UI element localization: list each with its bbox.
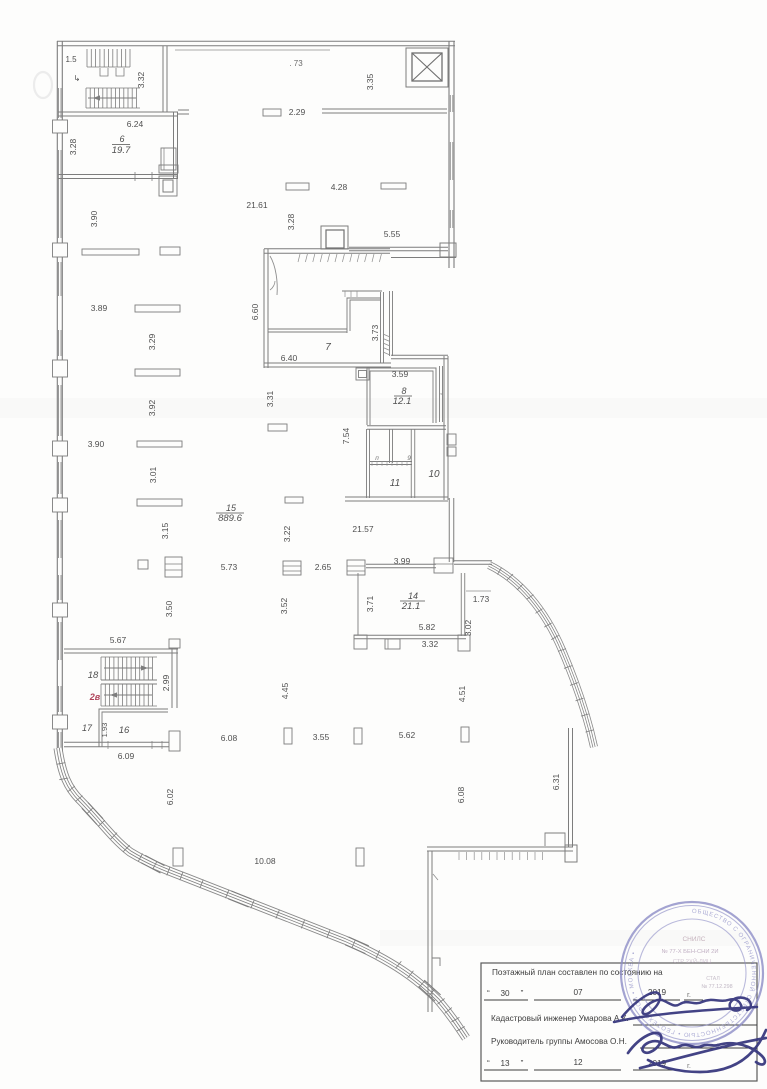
svg-text:№ 77-Х БЕН-СНИ 2И: № 77-Х БЕН-СНИ 2И bbox=[661, 949, 718, 955]
svg-text:СТР 2ХЙ-ЛИЦ: СТР 2ХЙ-ЛИЦ bbox=[673, 957, 712, 965]
svg-text:Поэтажный план составлен по со: Поэтажный план составлен по состоянию на bbox=[492, 968, 663, 977]
svg-text:п: п bbox=[375, 455, 379, 462]
svg-text:5.67: 5.67 bbox=[110, 635, 127, 645]
svg-text:3.32: 3.32 bbox=[136, 71, 146, 88]
svg-text:3.32: 3.32 bbox=[422, 639, 439, 649]
svg-text:3.28: 3.28 bbox=[286, 213, 296, 230]
svg-text:5.73: 5.73 bbox=[221, 562, 238, 572]
svg-text:18: 18 bbox=[88, 670, 99, 681]
svg-text:21.57: 21.57 bbox=[352, 524, 374, 534]
svg-text:12.1: 12.1 bbox=[393, 396, 412, 407]
svg-text:5.82: 5.82 bbox=[419, 622, 436, 632]
svg-text:3.99: 3.99 bbox=[394, 556, 411, 566]
svg-text:16: 16 bbox=[119, 725, 130, 736]
svg-text:3.92: 3.92 bbox=[147, 399, 157, 416]
svg-text:3.01: 3.01 bbox=[148, 466, 158, 483]
svg-text:21.61: 21.61 bbox=[246, 200, 268, 210]
svg-text:6.60: 6.60 bbox=[250, 303, 260, 320]
svg-text:3.90: 3.90 bbox=[88, 439, 105, 449]
svg-text:4.45: 4.45 bbox=[280, 682, 290, 699]
svg-text:↳: ↳ bbox=[74, 74, 81, 83]
svg-text:2.65: 2.65 bbox=[315, 562, 332, 572]
svg-text:6.24: 6.24 bbox=[127, 119, 144, 129]
svg-text:1.93: 1.93 bbox=[100, 723, 109, 738]
svg-text:4.28: 4.28 bbox=[331, 182, 348, 192]
svg-text:1.5: 1.5 bbox=[65, 55, 77, 64]
svg-text:4.51: 4.51 bbox=[457, 685, 467, 702]
svg-text:9: 9 bbox=[407, 455, 411, 462]
svg-text:2.99: 2.99 bbox=[161, 674, 171, 691]
svg-text:6.09: 6.09 bbox=[118, 751, 135, 761]
svg-text:7: 7 bbox=[325, 342, 331, 353]
svg-text:2.29: 2.29 bbox=[289, 107, 306, 117]
svg-text:30: 30 bbox=[500, 989, 510, 998]
svg-text:3.90: 3.90 bbox=[89, 210, 99, 227]
svg-text:2в: 2в bbox=[89, 692, 101, 702]
svg-text:10: 10 bbox=[428, 469, 440, 480]
svg-text:3.31: 3.31 bbox=[265, 390, 275, 407]
svg-text:5.62: 5.62 bbox=[399, 730, 416, 740]
svg-text:3.29: 3.29 bbox=[147, 333, 157, 350]
svg-text:3.28: 3.28 bbox=[68, 138, 78, 155]
svg-text:3.73: 3.73 bbox=[370, 324, 380, 341]
svg-text:3.59: 3.59 bbox=[392, 369, 409, 379]
svg-text:3.15: 3.15 bbox=[160, 522, 170, 539]
svg-text:5.55: 5.55 bbox=[384, 229, 401, 239]
svg-text:6.08: 6.08 bbox=[456, 786, 466, 803]
svg-text:07: 07 bbox=[573, 988, 583, 997]
svg-text:6.40: 6.40 bbox=[281, 353, 298, 363]
svg-text:№ 77.12.298: № 77.12.298 bbox=[701, 984, 732, 990]
svg-text:3.50: 3.50 bbox=[164, 600, 174, 617]
svg-text:6.08: 6.08 bbox=[221, 733, 238, 743]
svg-text:7.54: 7.54 bbox=[341, 427, 351, 444]
svg-text:14: 14 bbox=[408, 591, 418, 601]
svg-text:“: “ bbox=[487, 1059, 490, 1068]
svg-text:12: 12 bbox=[573, 1058, 583, 1067]
svg-text:13: 13 bbox=[500, 1059, 510, 1068]
svg-text:3.22: 3.22 bbox=[282, 525, 292, 542]
svg-text:3.52: 3.52 bbox=[279, 597, 289, 614]
svg-text:6: 6 bbox=[119, 134, 124, 144]
svg-text:6.31: 6.31 bbox=[551, 773, 561, 790]
svg-text:. 73: . 73 bbox=[289, 59, 303, 68]
svg-text:Руководитель группы Амосова О.: Руководитель группы Амосова О.Н. bbox=[491, 1037, 627, 1046]
svg-text:17: 17 bbox=[82, 723, 93, 733]
svg-text:10.08: 10.08 bbox=[254, 856, 276, 866]
svg-text:“: “ bbox=[487, 989, 490, 998]
svg-text:21.1: 21.1 bbox=[401, 601, 421, 612]
svg-text:г.: г. bbox=[687, 1061, 691, 1070]
svg-text:1.73: 1.73 bbox=[473, 594, 490, 604]
svg-text:СТАЛ: СТАЛ bbox=[706, 976, 720, 982]
svg-text:СНИЛС: СНИЛС bbox=[682, 936, 705, 943]
svg-text:”: ” bbox=[521, 1059, 524, 1068]
svg-text:3.35: 3.35 bbox=[365, 73, 375, 90]
svg-text:889.6: 889.6 bbox=[218, 513, 242, 524]
svg-text:15: 15 bbox=[226, 503, 237, 513]
svg-text:3.89: 3.89 bbox=[91, 303, 108, 313]
svg-text:”: ” bbox=[521, 989, 524, 998]
svg-text:3.55: 3.55 bbox=[313, 732, 330, 742]
svg-text:3.02: 3.02 bbox=[463, 619, 473, 636]
svg-text:г.: г. bbox=[687, 990, 691, 999]
svg-text:3.71: 3.71 bbox=[365, 595, 375, 612]
svg-text:19.7: 19.7 bbox=[112, 145, 131, 156]
svg-text:8: 8 bbox=[401, 386, 406, 396]
svg-text:6.02: 6.02 bbox=[165, 788, 175, 805]
svg-text:Кадастровый инженер Умарова А.: Кадастровый инженер Умарова А.К. bbox=[491, 1014, 629, 1023]
svg-text:11: 11 bbox=[390, 478, 400, 489]
